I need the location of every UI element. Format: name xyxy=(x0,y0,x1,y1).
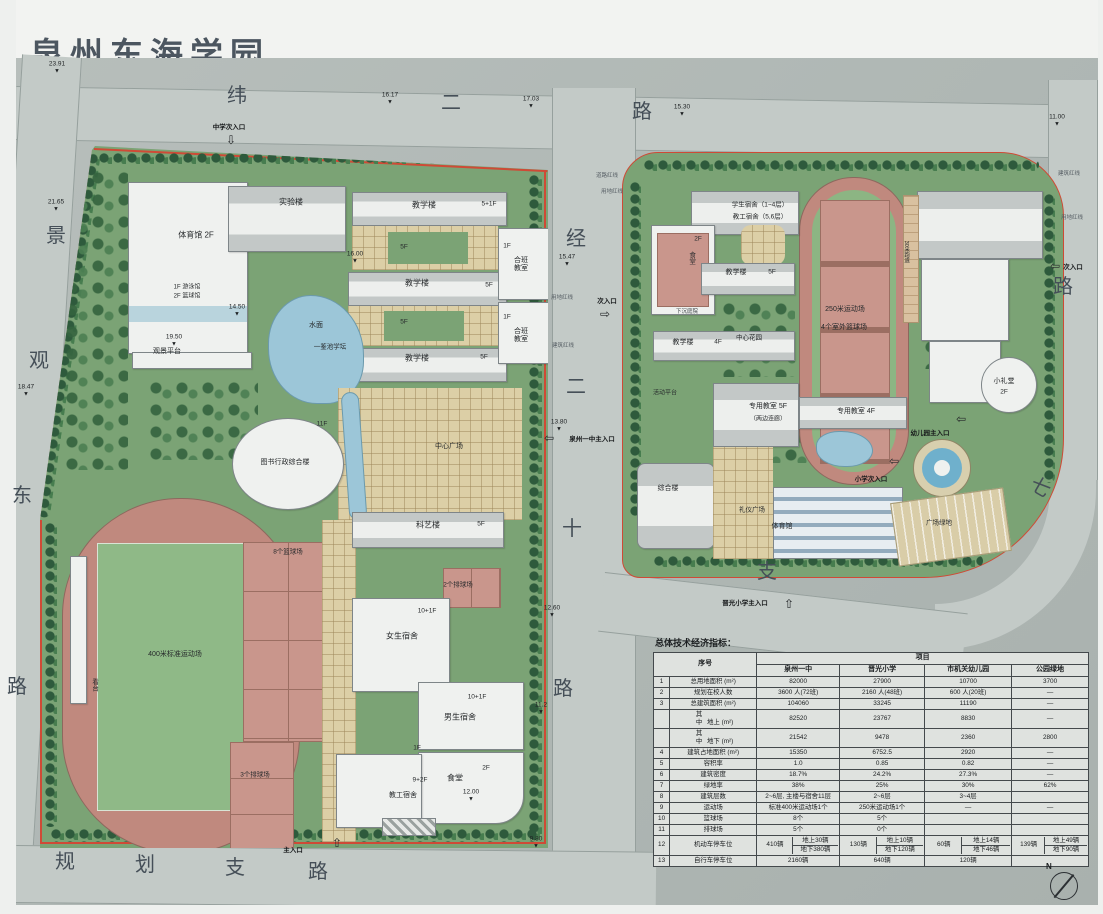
grandstand xyxy=(70,556,87,704)
table-row: 8建筑层数2~6层, 主楼与宿舍11层2~6层3~4层 xyxy=(654,791,1089,802)
kindergarten-track-30m xyxy=(903,195,919,323)
row-label: 其中地下 (m²) xyxy=(670,728,757,747)
table-cell: 0.85 xyxy=(840,758,925,769)
row-label: 其中地上 (m²) xyxy=(670,709,757,728)
table-cell xyxy=(1012,813,1089,824)
kindergarten-building-north xyxy=(917,191,1043,259)
row-index: 9 xyxy=(654,802,670,813)
teaching-building-1 xyxy=(352,192,507,226)
campus-jinguang-primary-and-kindergarten xyxy=(622,152,1064,578)
staff-dormitory xyxy=(336,754,422,828)
row-label: 建筑占地面积 (m²) xyxy=(670,747,757,758)
boys-dormitory xyxy=(418,682,524,750)
table-row: 其中地上 (m²)82520237678830— xyxy=(654,709,1089,728)
table-cell: 3~4层 xyxy=(925,791,1012,802)
tree-belt xyxy=(44,522,57,827)
table-cell: 2160辆 xyxy=(757,855,840,866)
table-cell: — xyxy=(1012,709,1089,728)
photo-edge xyxy=(1098,0,1103,914)
table-cell: 2~6层, 主楼与宿舍11层 xyxy=(757,791,840,802)
indicators-title: 总体技术经济指标： xyxy=(655,636,1093,649)
col-header-school-3: 市机关幼儿园 xyxy=(925,664,1012,676)
special-classroom-5f-hall xyxy=(713,383,799,447)
row-index xyxy=(654,728,670,747)
table-cell: — xyxy=(1012,698,1089,709)
primary-teaching-building-2 xyxy=(653,331,795,361)
table-cell: — xyxy=(1012,747,1089,758)
row-label: 绿地率 xyxy=(670,780,757,791)
row-index: 8 xyxy=(654,791,670,802)
north-compass-icon xyxy=(1050,872,1078,900)
table-cell: 23767 xyxy=(840,709,925,728)
indicators-table: 序号 项目 泉州一中 晋光小学 市机关幼儿园 公园绿地 1总用地面积 (m²)8… xyxy=(653,652,1089,867)
table-cell: 11190 xyxy=(925,698,1012,709)
row-index: 3 xyxy=(654,698,670,709)
table-cell: 15350 xyxy=(757,747,840,758)
col-header-index: 序号 xyxy=(654,653,757,677)
row-index: 10 xyxy=(654,813,670,824)
library-admin-complex-oval xyxy=(232,418,344,510)
row-label: 建筑密度 xyxy=(670,769,757,780)
row-label: 建筑层数 xyxy=(670,791,757,802)
table-cell: 2800 xyxy=(1012,728,1089,747)
table-cell: 82520 xyxy=(757,709,840,728)
row-index: 13 xyxy=(654,855,670,866)
table-cell: — xyxy=(1012,758,1089,769)
table-cell: 38% xyxy=(757,780,840,791)
campus-quanzhou-no1-middle-school xyxy=(28,140,550,856)
table-cell: 640辆 xyxy=(840,855,925,866)
park-fountain xyxy=(913,439,971,497)
row-index: 2 xyxy=(654,687,670,698)
table-cell: 33245 xyxy=(840,698,925,709)
row-label: 篮球场 xyxy=(670,813,757,824)
garage-ramp xyxy=(382,818,436,836)
table-cell: 410辆地上30辆地下380辆 xyxy=(757,835,840,855)
table-cell: 8个 xyxy=(757,813,840,824)
table-cell: 139辆地上49辆地下90辆 xyxy=(1012,835,1089,855)
row-label: 运动场 xyxy=(670,802,757,813)
canteen-building xyxy=(418,752,524,824)
special-classroom-4f xyxy=(799,397,907,429)
table-cell: 1.0 xyxy=(757,758,840,769)
table-cell: 27900 xyxy=(840,676,925,687)
table-cell: — xyxy=(1012,802,1089,813)
row-index: 1 xyxy=(654,676,670,687)
table-cell: 3600 人(72班) xyxy=(757,687,840,698)
science-arts-building xyxy=(352,512,504,548)
table-cell: 2360 xyxy=(925,728,1012,747)
viewing-platform xyxy=(132,352,252,369)
north-label: N xyxy=(1046,862,1052,871)
table-cell xyxy=(925,813,1012,824)
row-label: 总建筑面积 (m²) xyxy=(670,698,757,709)
teaching-building-3 xyxy=(348,348,507,382)
row-index: 11 xyxy=(654,824,670,835)
table-cell: 2160 人(48班) xyxy=(840,687,925,698)
row-label: 排球场 xyxy=(670,824,757,835)
table-cell: 104060 xyxy=(757,698,840,709)
volleyball-courts-2 xyxy=(443,568,501,608)
indicators-table-body: 1总用地面积 (m²)82000279001070037002规划在校人数360… xyxy=(654,676,1089,866)
table-cell: — xyxy=(1012,769,1089,780)
primary-gymnasium xyxy=(773,487,903,559)
table-cell: 5个 xyxy=(757,824,840,835)
col-header-school-4: 公园绿地 xyxy=(1012,664,1089,676)
tree-belt xyxy=(643,159,1039,171)
row-label: 机动车停车位 xyxy=(670,835,757,855)
table-row: 7绿地率38%25%30%62% xyxy=(654,780,1089,791)
comprehensive-building xyxy=(637,463,715,549)
small-auditorium-circle xyxy=(981,357,1037,413)
table-row: 1总用地面积 (m²)8200027900107003700 xyxy=(654,676,1089,687)
table-row: 11排球场5个0个 xyxy=(654,824,1089,835)
table-row: 9运动场标准400米运动场1个250米运动场1个—— xyxy=(654,802,1089,813)
table-row: 5容积率1.00.850.82— xyxy=(654,758,1089,769)
row-index: 4 xyxy=(654,747,670,758)
table-cell: 2~6层 xyxy=(840,791,925,802)
table-cell: 30% xyxy=(925,780,1012,791)
row-label: 容积率 xyxy=(670,758,757,769)
col-header-school-1: 泉州一中 xyxy=(757,664,840,676)
table-cell: 24.2% xyxy=(840,769,925,780)
table-cell: 标准400米运动场1个 xyxy=(757,802,840,813)
table-cell: 130辆地上10辆地下120辆 xyxy=(840,835,925,855)
table-cell: 9478 xyxy=(840,728,925,747)
kindergarten-building-middle xyxy=(921,259,1009,341)
table-row: 10篮球场8个5个 xyxy=(654,813,1089,824)
table-row: 3总建筑面积 (m²)1040603324511190— xyxy=(654,698,1089,709)
table-row: 2规划在校人数3600 人(72班)2160 人(48班)600 人(20班)— xyxy=(654,687,1089,698)
row-label: 总用地面积 (m²) xyxy=(670,676,757,687)
table-row: 6建筑密度18.7%24.2%27.3%— xyxy=(654,769,1089,780)
ceremony-plaza xyxy=(713,447,773,559)
table-cell: — xyxy=(925,802,1012,813)
row-label: 规划在校人数 xyxy=(670,687,757,698)
laboratory-building xyxy=(228,186,346,252)
boundary-line xyxy=(40,520,42,844)
table-cell: 18.7% xyxy=(757,769,840,780)
table-cell: 82000 xyxy=(757,676,840,687)
campus-masterplan-photo: 泉州东海学园 xyxy=(0,0,1103,914)
indicators-panel: 总体技术经济指标： 序号 项目 泉州一中 晋光小学 市机关幼儿园 公园绿地 1总… xyxy=(653,636,1093,867)
combined-classroom-2 xyxy=(498,302,550,364)
table-cell xyxy=(925,824,1012,835)
primary-teaching-building-1 xyxy=(701,263,795,295)
row-index: 6 xyxy=(654,769,670,780)
row-label: 自行车停车位 xyxy=(670,855,757,866)
table-cell: 3700 xyxy=(1012,676,1089,687)
courtyard-2 xyxy=(348,306,498,346)
table-cell: 5个 xyxy=(840,813,925,824)
flag-plaza-octagon xyxy=(741,225,785,265)
table-cell: 62% xyxy=(1012,780,1089,791)
tree-belt xyxy=(1043,193,1055,483)
boundary-line xyxy=(42,842,546,844)
photo-edge xyxy=(0,0,16,914)
table-cell xyxy=(1012,791,1089,802)
row-index: 5 xyxy=(654,758,670,769)
table-cell: 60辆地上14辆地下46辆 xyxy=(925,835,1012,855)
table-cell: 0.82 xyxy=(925,758,1012,769)
table-cell: 0个 xyxy=(840,824,925,835)
table-row: 4建筑占地面积 (m²)153506752.52920— xyxy=(654,747,1089,758)
table-cell: 600 人(20班) xyxy=(925,687,1012,698)
table-cell: 6752.5 xyxy=(840,747,925,758)
row-index: 12 xyxy=(654,835,670,855)
table-cell: 8830 xyxy=(925,709,1012,728)
table-row: 其中地下 (m²)21542947823602800 xyxy=(654,728,1089,747)
table-row: 12机动车停车位410辆地上30辆地下380辆130辆地上10辆地下120辆60… xyxy=(654,835,1089,855)
col-header-project: 项目 xyxy=(757,653,1089,665)
table-row: 13自行车停车位2160辆640辆120辆 xyxy=(654,855,1089,866)
row-index xyxy=(654,709,670,728)
table-cell: 27.3% xyxy=(925,769,1012,780)
combined-classroom-1 xyxy=(498,228,550,300)
volleyball-courts-3 xyxy=(230,742,294,854)
teaching-building-2 xyxy=(348,272,507,306)
table-cell: 10700 xyxy=(925,676,1012,687)
table-cell xyxy=(1012,824,1089,835)
table-cell: 25% xyxy=(840,780,925,791)
photo-edge xyxy=(0,905,1103,914)
stream-water-feature xyxy=(816,431,873,467)
road-guihua-branch xyxy=(16,845,657,910)
park-parking-area xyxy=(890,487,1012,566)
girls-dormitory xyxy=(352,598,450,692)
courtyard-1 xyxy=(352,226,498,270)
table-cell: 21542 xyxy=(757,728,840,747)
table-cell: — xyxy=(1012,687,1089,698)
table-cell: 250米运动场1个 xyxy=(840,802,925,813)
col-header-school-2: 晋光小学 xyxy=(840,664,925,676)
table-cell: 120辆 xyxy=(925,855,1012,866)
pool-band xyxy=(129,306,247,322)
row-index: 7 xyxy=(654,780,670,791)
table-cell: 2920 xyxy=(925,747,1012,758)
